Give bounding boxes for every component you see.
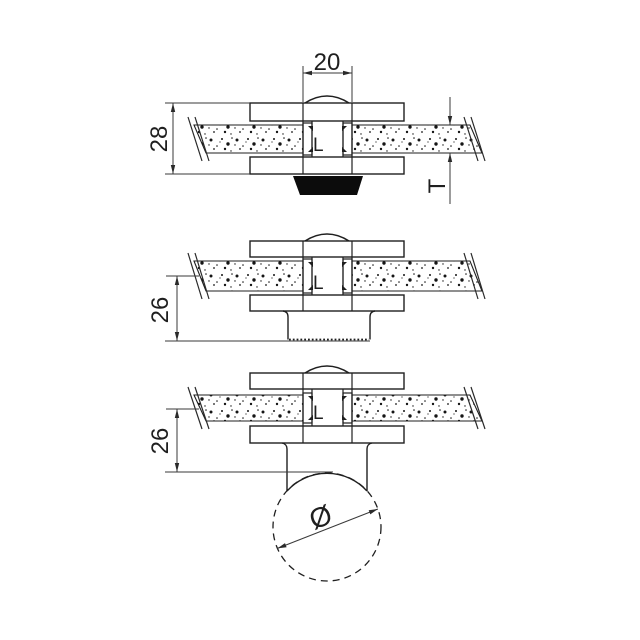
countersunk-screw-head <box>293 176 363 195</box>
dim-label-base-depth: 26 <box>147 428 174 455</box>
glass-inner-label: L <box>313 273 324 294</box>
glass-inner-label: L <box>313 135 324 156</box>
dim-label-base-depth: 26 <box>147 297 174 324</box>
glass-inner-label: L <box>313 403 324 424</box>
dim-label-overall-height: 28 <box>146 126 173 153</box>
dim-label-glass-thickness: T <box>424 178 451 193</box>
glass-clamp-technical-drawing: L 20 28 T <box>0 0 640 640</box>
dim-label-slot-width: 20 <box>314 49 341 76</box>
